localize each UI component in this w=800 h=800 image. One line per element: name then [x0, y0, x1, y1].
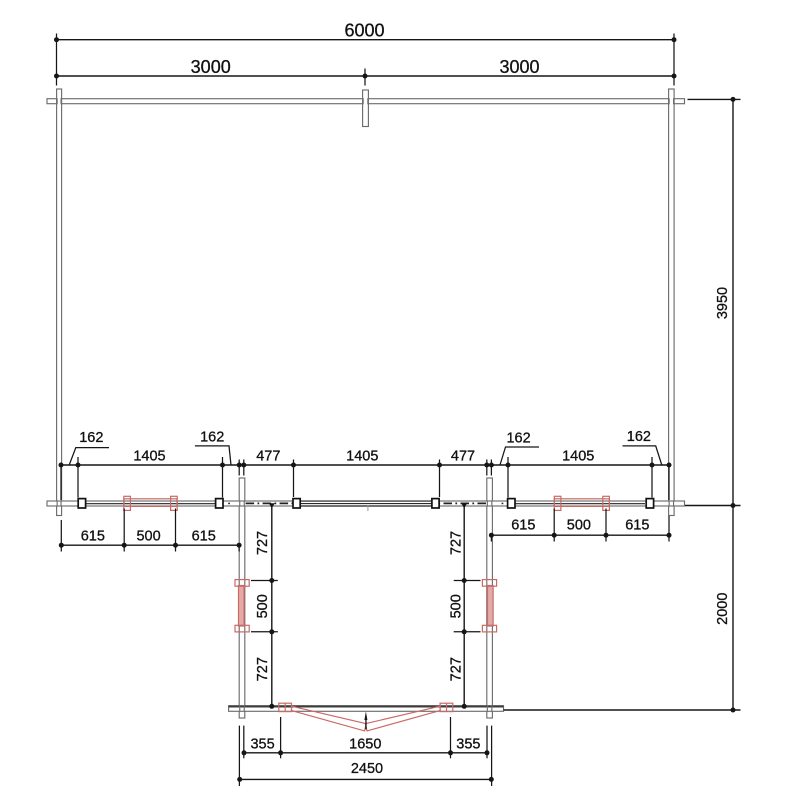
svg-text:727: 727 [255, 657, 271, 681]
svg-text:727: 727 [255, 531, 271, 555]
svg-text:1405: 1405 [133, 449, 165, 465]
svg-text:2450: 2450 [351, 761, 383, 777]
svg-text:162: 162 [200, 430, 224, 446]
svg-text:500: 500 [255, 594, 271, 618]
svg-text:500: 500 [136, 529, 160, 545]
svg-text:1405: 1405 [562, 449, 594, 465]
svg-text:3000: 3000 [499, 57, 539, 77]
svg-text:500: 500 [448, 594, 464, 618]
svg-text:477: 477 [451, 449, 475, 465]
svg-text:1405: 1405 [346, 449, 378, 465]
svg-text:727: 727 [448, 531, 464, 555]
svg-text:615: 615 [625, 517, 649, 533]
svg-text:162: 162 [79, 430, 103, 446]
svg-text:162: 162 [506, 431, 530, 447]
svg-text:3000: 3000 [191, 57, 231, 77]
svg-text:615: 615 [81, 529, 105, 545]
svg-text:355: 355 [456, 737, 480, 753]
svg-text:1650: 1650 [349, 737, 381, 753]
svg-text:477: 477 [256, 449, 280, 465]
svg-text:3950: 3950 [715, 287, 731, 319]
svg-text:727: 727 [448, 657, 464, 681]
svg-text:615: 615 [192, 529, 216, 545]
svg-text:355: 355 [250, 737, 274, 753]
svg-text:6000: 6000 [344, 20, 384, 40]
svg-text:500: 500 [567, 517, 591, 533]
svg-text:615: 615 [511, 517, 535, 533]
svg-text:162: 162 [627, 429, 651, 445]
svg-text:2000: 2000 [715, 593, 731, 625]
